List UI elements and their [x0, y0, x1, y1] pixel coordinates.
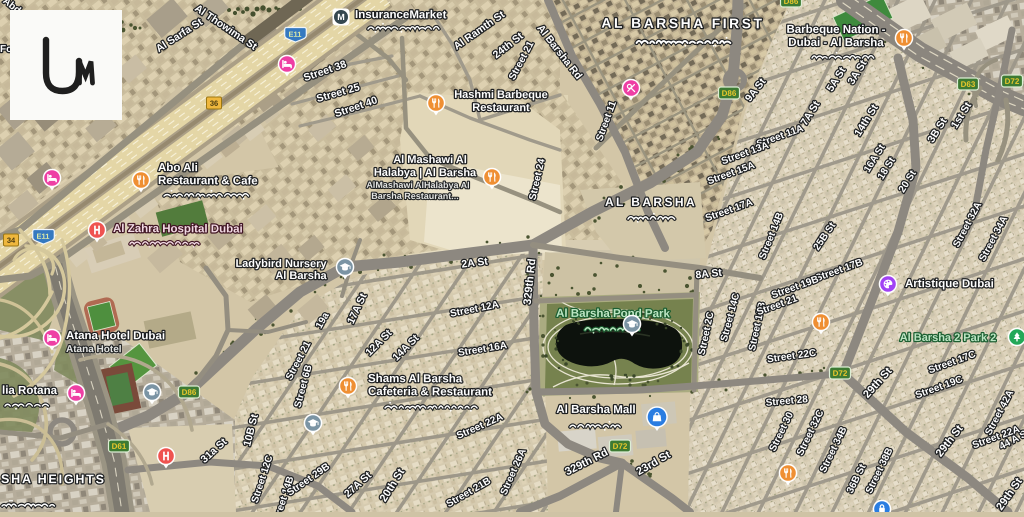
svg-text:D63: D63 [961, 80, 976, 89]
svg-text:D86: D86 [784, 0, 799, 6]
svg-text:Barsha Restaurant...: Barsha Restaurant... [371, 191, 459, 201]
svg-text:Cafeteria & Restaurant: Cafeteria & Restaurant [368, 386, 492, 398]
svg-text:Barbeque Nation -: Barbeque Nation - [786, 24, 885, 36]
svg-text:Halabya | Al Barsha: Halabya | Al Barsha [374, 167, 477, 179]
svg-text:D72: D72 [833, 369, 848, 378]
svg-text:Al Zahra Hospital Dubai: Al Zahra Hospital Dubai [113, 223, 243, 235]
svg-text:Atana Hotel: Atana Hotel [66, 344, 122, 355]
svg-text:D86: D86 [722, 89, 737, 98]
svg-text:Restaurant: Restaurant [472, 102, 530, 114]
svg-text:Atana Hotel Dubai: Atana Hotel Dubai [66, 330, 165, 342]
svg-text:AL BARSHA: AL BARSHA [605, 195, 697, 209]
svg-text:Artistique Dubai: Artistique Dubai [905, 278, 994, 290]
svg-text:AL BARSHA FIRST: AL BARSHA FIRST [601, 16, 764, 32]
svg-text:Shams Al Barsha: Shams Al Barsha [368, 373, 463, 385]
svg-text:34: 34 [7, 236, 16, 245]
svg-text:Abo Ali: Abo Ali [158, 162, 198, 174]
svg-text:D72: D72 [613, 442, 628, 451]
svg-text:D61: D61 [112, 442, 127, 451]
svg-text:36: 36 [210, 99, 218, 108]
svg-text:M: M [337, 12, 345, 22]
svg-text:E11: E11 [37, 232, 50, 241]
svg-text:Hashmi Barbeque: Hashmi Barbeque [454, 89, 548, 101]
svg-text:Dubai - Al Barsha: Dubai - Al Barsha [788, 37, 884, 49]
svg-text:Al Barsha Pond Park: Al Barsha Pond Park [556, 308, 670, 320]
svg-text:InsuranceMarket: InsuranceMarket [355, 9, 447, 21]
svg-text:Al Mashawi Al: Al Mashawi Al [393, 154, 467, 166]
svg-text:Al Barsha 2 Park 2: Al Barsha 2 Park 2 [900, 332, 997, 344]
svg-text:D86: D86 [182, 388, 197, 397]
svg-text:Restaurant & Cafe: Restaurant & Cafe [158, 175, 258, 187]
svg-text:AlMashawi AlHalabya Al: AlMashawi AlHalabya Al [366, 180, 469, 190]
svg-text:E11: E11 [289, 30, 302, 39]
svg-text:SHA HEIGHTS: SHA HEIGHTS [1, 472, 106, 486]
svg-text:Al Barsha Mall: Al Barsha Mall [556, 404, 635, 416]
svg-text:D72: D72 [1005, 77, 1020, 86]
svg-text:lia Rotana: lia Rotana [2, 385, 58, 397]
svg-text:Al Barsha: Al Barsha [275, 270, 327, 282]
svg-text:Ladybird Nursery: Ladybird Nursery [235, 258, 327, 270]
